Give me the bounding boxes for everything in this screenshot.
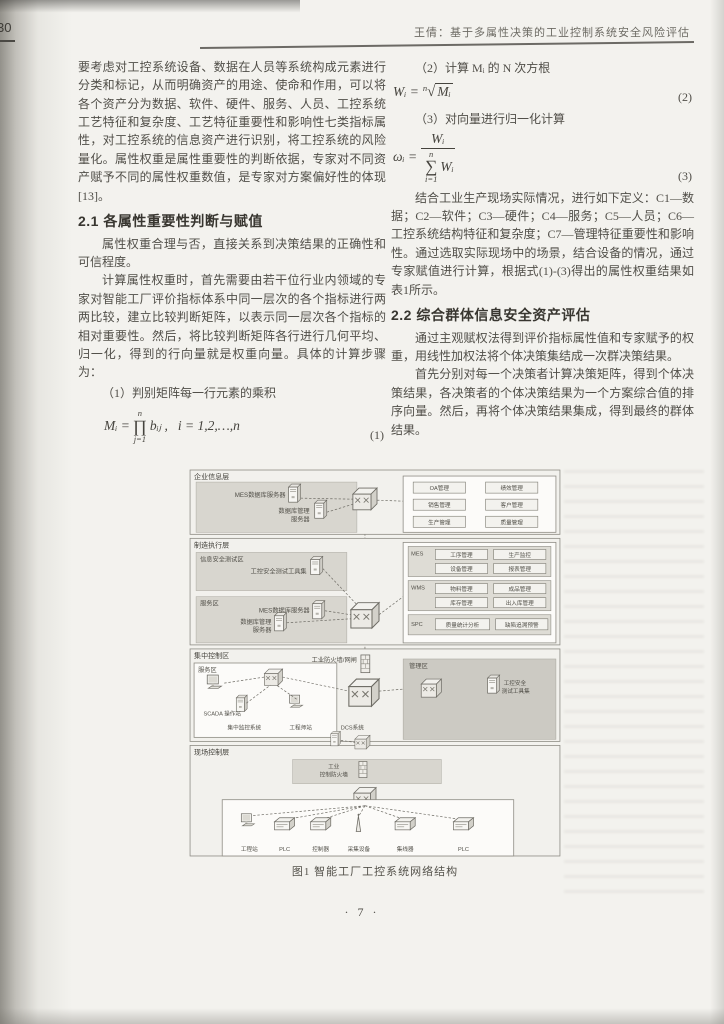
mes-item: 工序管理 xyxy=(450,551,473,559)
switch-icon xyxy=(264,669,282,685)
page-number: · 7 · xyxy=(0,905,724,920)
device-label: PLC xyxy=(458,847,469,853)
mes-item: 设备管理 xyxy=(450,565,473,573)
step3-label: （3）对向量进行归一化计算 xyxy=(391,110,694,128)
eq3-sum-symbol: ∑ xyxy=(425,158,437,175)
eq3-lhs: ωᵢ = xyxy=(393,149,417,165)
product-operator: n ∏ j=1 xyxy=(133,409,147,443)
mes-item: 生产监控 xyxy=(509,551,532,559)
eq1-condition: i = 1,2,…,n xyxy=(178,418,240,434)
step2-label: （2）计算 Mᵢ 的 N 次方根 xyxy=(391,59,694,77)
figure-1: 企业信息层 MES数据库服务器 数据库管理 服务器 OA管理 绩效管理 销售管理… xyxy=(186,468,564,879)
spc-item: 质量统计分析 xyxy=(446,621,480,629)
erp-item: 客户管理 xyxy=(500,501,523,509)
server-icon xyxy=(488,675,500,693)
eq2-lhs: Wᵢ = xyxy=(393,84,419,100)
layer2-mgmt-server-label2: 服务器 xyxy=(253,626,272,634)
scan-spine-shadow xyxy=(0,0,72,1024)
layer4-title: 现场控制层 xyxy=(194,747,229,756)
server-icon xyxy=(274,613,286,631)
eq2-radicand: Mᵢ xyxy=(435,83,452,100)
manage-tool-label2: 测试工具集 xyxy=(502,687,530,695)
layer1-db-server-label: MES数据库服务器 xyxy=(235,491,287,499)
mes-group-label: MES xyxy=(411,551,423,557)
eq3-denominator: n ∑ i=1 Wᵢ xyxy=(422,149,454,184)
wms-item: 库存管理 xyxy=(450,599,473,607)
scan-bottom-shadow xyxy=(0,1008,724,1024)
device-label: 工程站 xyxy=(241,845,258,853)
security-test-zone-label: 信息安全测试区 xyxy=(200,555,244,563)
erp-item: 质量管理 xyxy=(500,518,523,526)
spc-group-label: SPC xyxy=(411,622,423,628)
equation-3: ωᵢ = Wᵢ n ∑ i=1 Wᵢ (3) xyxy=(393,131,694,184)
layer1-mgmt-server-label2: 服务器 xyxy=(291,515,310,523)
network-diagram: 企业信息层 MES数据库服务器 数据库管理 服务器 OA管理 绩效管理 销售管理… xyxy=(186,468,564,860)
dcs-label: DCS系统 xyxy=(341,723,364,731)
firewall-icon xyxy=(361,655,370,673)
paragraph-asset-classification: 要考虑对工控系统设备、数据在人员等系统构成元素进行分类和标记，从而明确资产的用途… xyxy=(78,58,386,205)
manage-zone xyxy=(403,659,556,739)
eq1-prod-symbol: ∏ xyxy=(133,418,147,435)
server-icon xyxy=(331,731,341,745)
radical: n √ Mᵢ xyxy=(423,83,453,101)
paragraph-weight-rationality: 属性权重合理与否，直接关系到决策结果的正确性和可信程度。 xyxy=(78,235,386,272)
running-header: 王倩：基于多属性决策的工业控制系统安全风险评估 xyxy=(414,24,690,40)
manage-tool-label1: 工控安全 xyxy=(504,679,527,687)
wms-item: 物料管理 xyxy=(450,585,473,593)
erp-item: 生产管理 xyxy=(428,518,451,526)
plc-icon xyxy=(274,818,294,830)
manage-zone-label: 管理区 xyxy=(409,662,428,670)
equation-2: Wᵢ = n √ Mᵢ (2) xyxy=(393,79,694,105)
server-icon xyxy=(289,484,301,502)
heading-2-2: 2.2 综合群体信息安全资产评估 xyxy=(391,306,694,325)
scada-station-label: SCADA 操作站 xyxy=(204,709,242,717)
server-icon xyxy=(236,695,247,711)
erp-item: OA管理 xyxy=(430,484,450,492)
wms-group-label: WMS xyxy=(411,586,425,592)
paragraph-group-decision-2: 首先分别对每一个决策者计算决策矩阵，得到个体决策结果，各决策者的个体决策结果为一… xyxy=(391,365,694,438)
switch-icon xyxy=(349,679,379,706)
security-tool-label: 工控安全测试工具集 xyxy=(251,568,308,576)
eq1-lhs: Mᵢ = xyxy=(104,418,130,434)
eq2-root-index: n xyxy=(423,83,427,93)
device-label: 控制器 xyxy=(312,845,329,853)
heading-2-1: 2.1 各属性重要性判断与赋值 xyxy=(78,212,386,231)
erp-item: 销售管理 xyxy=(428,501,451,509)
switch-icon xyxy=(355,735,370,749)
left-column: 要考虑对工控系统设备、数据在人员等系统构成元素进行分类和标记，从而明确资产的用途… xyxy=(78,58,386,448)
server-icon xyxy=(313,601,325,619)
fraction: Wᵢ n ∑ i=1 Wᵢ xyxy=(421,131,454,184)
paragraph-attribute-definitions: 结合工业生产现场实际情况，进行如下定义：C1—数据；C2—软件；C3—硬件；C4… xyxy=(391,189,694,299)
wms-item: 出入库管理 xyxy=(506,599,534,607)
layer2-title: 制造执行层 xyxy=(194,540,229,549)
margin-tick xyxy=(0,40,15,42)
switch-icon xyxy=(421,679,441,697)
band-label1: 工业 xyxy=(328,763,340,771)
server-icon xyxy=(315,500,327,518)
paragraph-group-decision-1: 通过主观赋权法得到评价指标属性值和专家赋予的权重，用线性加权法将个体决策集结成一… xyxy=(391,329,694,366)
step1-label: （1）判别矩阵每一行元素的乘积 xyxy=(78,384,386,402)
service-zone-label: 服务区 xyxy=(200,600,219,608)
figure-caption: 图1 智能工厂工控系统网络结构 xyxy=(186,863,564,879)
header-rule xyxy=(200,41,694,49)
eq1-rhs: bᵢⱼ , xyxy=(150,418,168,434)
layer3-title: 集中控制区 xyxy=(194,651,229,660)
sum-operator: n ∑ i=1 xyxy=(425,150,437,184)
device-label: 集线器 xyxy=(397,845,414,853)
scan-top-shadow xyxy=(0,0,300,14)
layer2-mgmt-server-label1: 数据库管理 xyxy=(240,618,272,626)
layer1-title: 企业信息层 xyxy=(194,472,229,481)
plc-icon xyxy=(395,818,415,830)
eq3-numerator: Wᵢ xyxy=(421,131,454,149)
eq2-root-symbol: √ xyxy=(427,84,435,101)
spc-item: 缺陷追溯预警 xyxy=(505,621,539,629)
eq1-number: (1) xyxy=(370,428,384,443)
layer3-service-zone-label: 服务区 xyxy=(198,666,217,674)
firewall-icon xyxy=(359,761,367,777)
device-label: PLC xyxy=(279,847,290,853)
right-column: （2）计算 Mᵢ 的 N 次方根 Wᵢ = n √ Mᵢ (2) （3）对向量进… xyxy=(391,57,694,439)
central-monitor-label: 集中监控系统 xyxy=(228,723,262,731)
eq3-sum-lower: i=1 xyxy=(425,175,437,184)
scan-right-shadow xyxy=(710,0,724,1024)
plc-icon xyxy=(453,818,473,830)
engineer-station-label: 工程师站 xyxy=(289,723,312,731)
margin-page-number: 30 xyxy=(0,20,11,35)
band-label2: 控制防火墙 xyxy=(320,771,348,779)
equation-1: Mᵢ = n ∏ j=1 bᵢⱼ , i = 1,2,…,n (1) xyxy=(104,409,386,443)
erp-item: 绩效管理 xyxy=(500,484,523,492)
eq3-den-tail: Wᵢ xyxy=(440,159,453,175)
eq1-prod-lower: j=1 xyxy=(134,435,146,444)
eq3-number: (3) xyxy=(678,169,692,184)
switch-icon xyxy=(351,603,379,628)
layer1-server-zone xyxy=(196,482,357,532)
layer1-mgmt-server-label1: 数据库管理 xyxy=(279,507,311,515)
device-label: 采集设备 xyxy=(348,845,371,853)
server-icon xyxy=(311,556,323,574)
plc-icon xyxy=(311,818,331,830)
switch-icon xyxy=(353,488,377,510)
page-bleedthrough xyxy=(564,470,704,900)
paragraph-weight-calculation: 计算属性权重时，首先需要由若干位行业内领域的专家对智能工厂评价指标体系中同一层次… xyxy=(78,271,386,381)
eq2-number: (2) xyxy=(678,90,692,105)
wms-item: 成品管理 xyxy=(509,585,532,593)
mes-item: 报表管理 xyxy=(509,565,532,573)
